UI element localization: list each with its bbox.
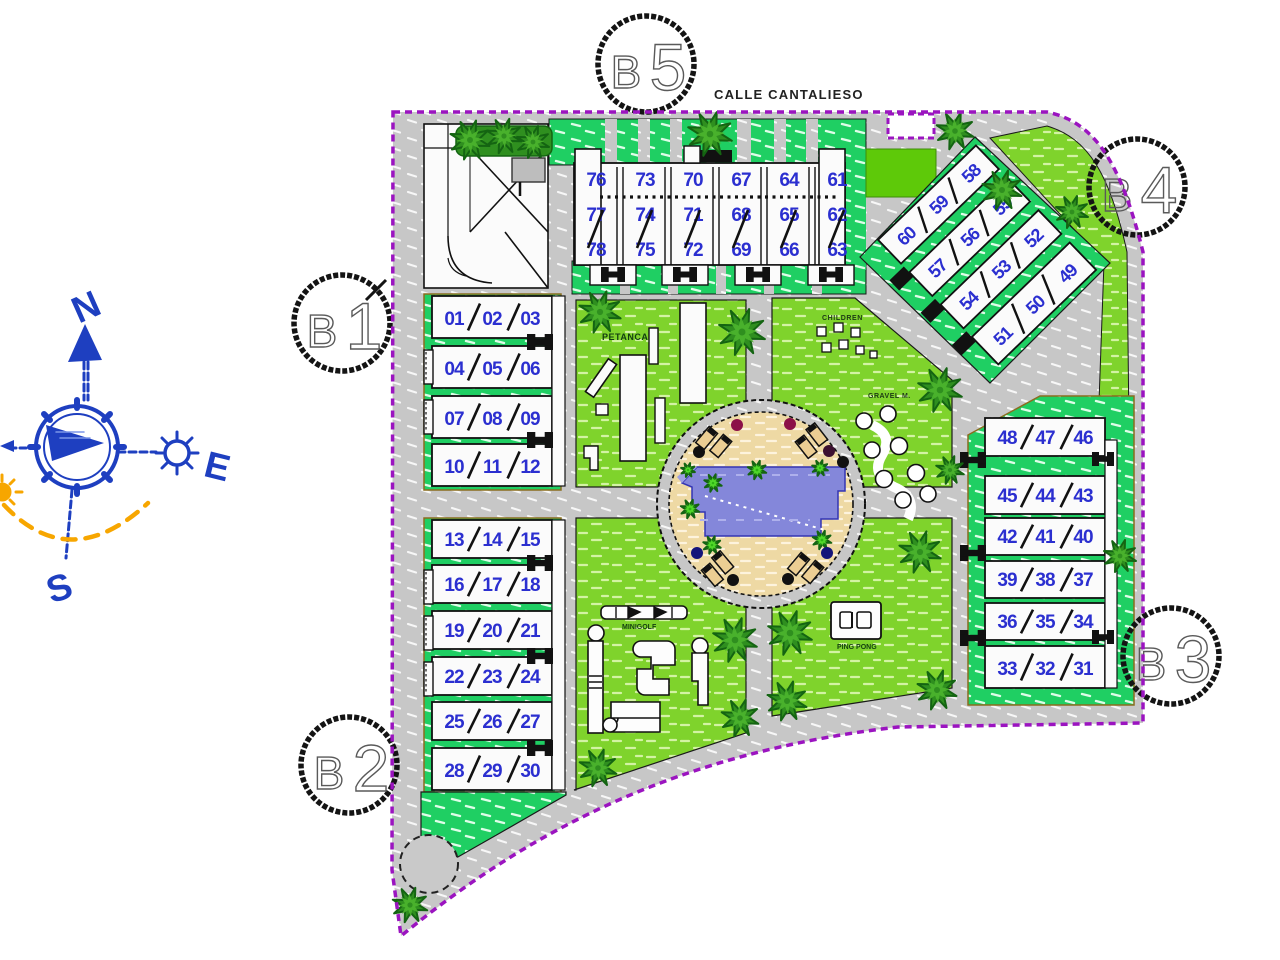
svg-text:77: 77 — [586, 205, 606, 226]
svg-text:29: 29 — [482, 761, 502, 782]
svg-text:45: 45 — [997, 486, 1018, 507]
svg-text:CALLE CANTALIESO: CALLE CANTALIESO — [714, 87, 864, 102]
svg-text:37: 37 — [1073, 570, 1093, 591]
svg-text:09: 09 — [520, 409, 540, 430]
svg-text:B: B — [611, 46, 642, 98]
svg-text:12: 12 — [520, 457, 540, 478]
svg-text:39: 39 — [997, 570, 1017, 591]
svg-text:20: 20 — [482, 621, 502, 642]
svg-text:10: 10 — [444, 457, 464, 478]
svg-text:23: 23 — [482, 667, 502, 688]
svg-text:38: 38 — [1035, 570, 1055, 591]
svg-text:18: 18 — [520, 575, 540, 596]
svg-text:35: 35 — [1035, 612, 1056, 633]
svg-text:B: B — [1102, 169, 1133, 221]
svg-text:B: B — [307, 305, 338, 357]
svg-text:5: 5 — [650, 30, 687, 104]
svg-text:68: 68 — [731, 205, 751, 226]
svg-text:13: 13 — [444, 530, 464, 551]
svg-text:B: B — [1136, 638, 1167, 690]
svg-text:61: 61 — [827, 170, 848, 191]
svg-text:42: 42 — [997, 527, 1017, 548]
svg-text:30: 30 — [520, 761, 540, 782]
svg-text:43: 43 — [1073, 486, 1093, 507]
svg-text:MINIGOLF: MINIGOLF — [622, 624, 657, 631]
svg-text:04: 04 — [444, 359, 465, 380]
svg-text:62: 62 — [827, 205, 847, 226]
svg-text:32: 32 — [1035, 659, 1055, 680]
svg-text:19: 19 — [444, 621, 464, 642]
svg-text:3: 3 — [1175, 622, 1212, 696]
svg-text:26: 26 — [482, 712, 502, 733]
svg-text:47: 47 — [1035, 428, 1055, 449]
svg-text:73: 73 — [635, 170, 655, 191]
svg-text:64: 64 — [779, 170, 800, 191]
svg-text:17: 17 — [482, 575, 502, 596]
svg-text:67: 67 — [731, 170, 751, 191]
svg-text:14: 14 — [482, 530, 503, 551]
svg-text:01: 01 — [444, 309, 465, 330]
svg-text:1: 1 — [346, 289, 383, 363]
svg-text:07: 07 — [444, 409, 464, 430]
svg-text:03: 03 — [520, 309, 540, 330]
svg-text:28: 28 — [444, 761, 464, 782]
svg-text:08: 08 — [482, 409, 502, 430]
svg-text:40: 40 — [1073, 527, 1093, 548]
svg-text:33: 33 — [997, 659, 1017, 680]
svg-text:44: 44 — [1035, 486, 1056, 507]
svg-text:27: 27 — [520, 712, 540, 733]
svg-text:31: 31 — [1073, 659, 1094, 680]
svg-text:46: 46 — [1073, 428, 1093, 449]
svg-text:21: 21 — [520, 621, 541, 642]
svg-text:70: 70 — [683, 170, 703, 191]
svg-text:34: 34 — [1073, 612, 1094, 633]
svg-text:02: 02 — [482, 309, 502, 330]
svg-text:B: B — [314, 747, 345, 799]
svg-text:11: 11 — [483, 457, 503, 478]
svg-text:PETANCA: PETANCA — [602, 332, 648, 342]
svg-text:05: 05 — [482, 359, 503, 380]
svg-text:48: 48 — [997, 428, 1017, 449]
svg-text:GRAVEL M.: GRAVEL M. — [868, 393, 911, 400]
svg-text:16: 16 — [444, 575, 464, 596]
svg-text:24: 24 — [520, 667, 541, 688]
svg-text:41: 41 — [1035, 527, 1056, 548]
svg-text:PING PONG: PING PONG — [837, 644, 877, 651]
svg-text:06: 06 — [520, 359, 540, 380]
svg-text:76: 76 — [586, 170, 606, 191]
svg-text:22: 22 — [444, 667, 464, 688]
svg-text:4: 4 — [1141, 153, 1178, 227]
svg-text:2: 2 — [353, 731, 390, 805]
svg-text:CHILDREN: CHILDREN — [822, 315, 863, 322]
svg-text:25: 25 — [444, 712, 465, 733]
svg-text:15: 15 — [520, 530, 541, 551]
svg-text:36: 36 — [997, 612, 1017, 633]
